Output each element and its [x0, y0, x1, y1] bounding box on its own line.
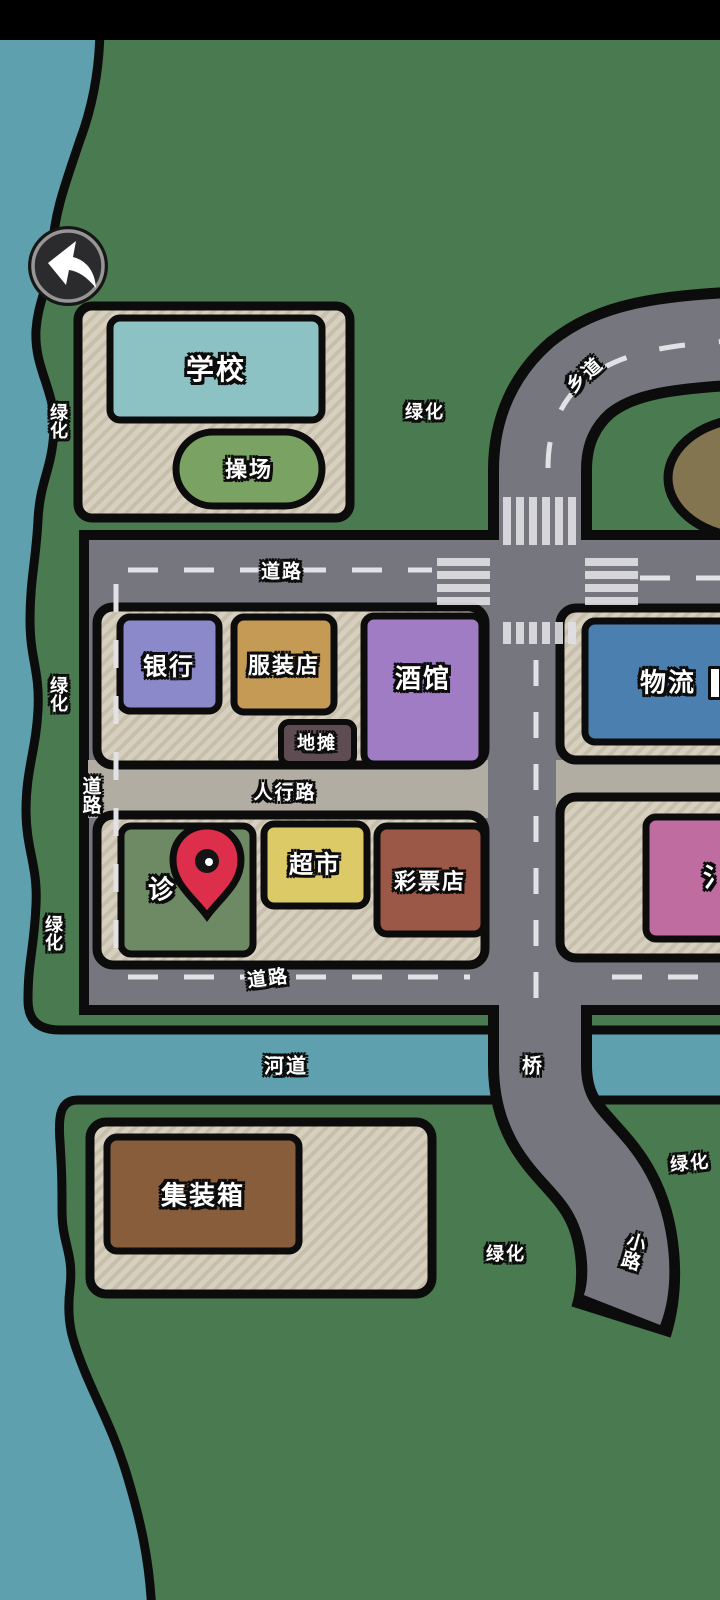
status-bar — [0, 0, 720, 40]
greenery-label: 绿化 — [486, 1240, 526, 1266]
pedestrian-road-label: 人行路 — [253, 778, 316, 805]
back-button[interactable] — [27, 225, 109, 307]
bridge-label: 桥 — [522, 1050, 544, 1079]
logistics-label: 物流 — [640, 663, 696, 700]
tavern-label: 酒馆 — [395, 659, 451, 696]
bank-label: 银行 — [143, 647, 195, 682]
playground-label: 操场 — [225, 452, 273, 484]
logistics-label-partial-char — [708, 666, 720, 700]
school-label: 学校 — [186, 348, 246, 388]
greenery-label: 绿化 — [44, 676, 70, 712]
street-stall-label: 地摊 — [297, 729, 337, 755]
dirt-mound — [668, 418, 720, 538]
greenery-label: 绿化 — [669, 1147, 711, 1177]
road-bottom-label: 道路 — [246, 961, 291, 993]
greenery-label: 绿化 — [405, 398, 445, 424]
river-label: 河道 — [264, 1050, 308, 1079]
container-label: 集装箱 — [161, 1176, 245, 1213]
road-top-label: 道路 — [261, 557, 303, 584]
greenery-label: 绿化 — [39, 915, 65, 951]
road-left-label: 道路 — [78, 776, 105, 814]
clothing-store-label: 服装店 — [248, 648, 320, 680]
game-map-screen[interactable]: 学校 操场 银行 服装店 酒馆 地摊 诊 超市 彩票店 物流 氵 集装箱 道路 … — [0, 0, 720, 1600]
lottery-store-label: 彩票店 — [394, 864, 466, 896]
supermarket-label: 超市 — [289, 845, 341, 880]
location-pin-icon — [165, 818, 249, 924]
bathhouse-label-partial: 氵 — [703, 858, 720, 895]
greenery-label: 绿化 — [44, 403, 70, 439]
road-gap-south — [499, 1002, 581, 1018]
